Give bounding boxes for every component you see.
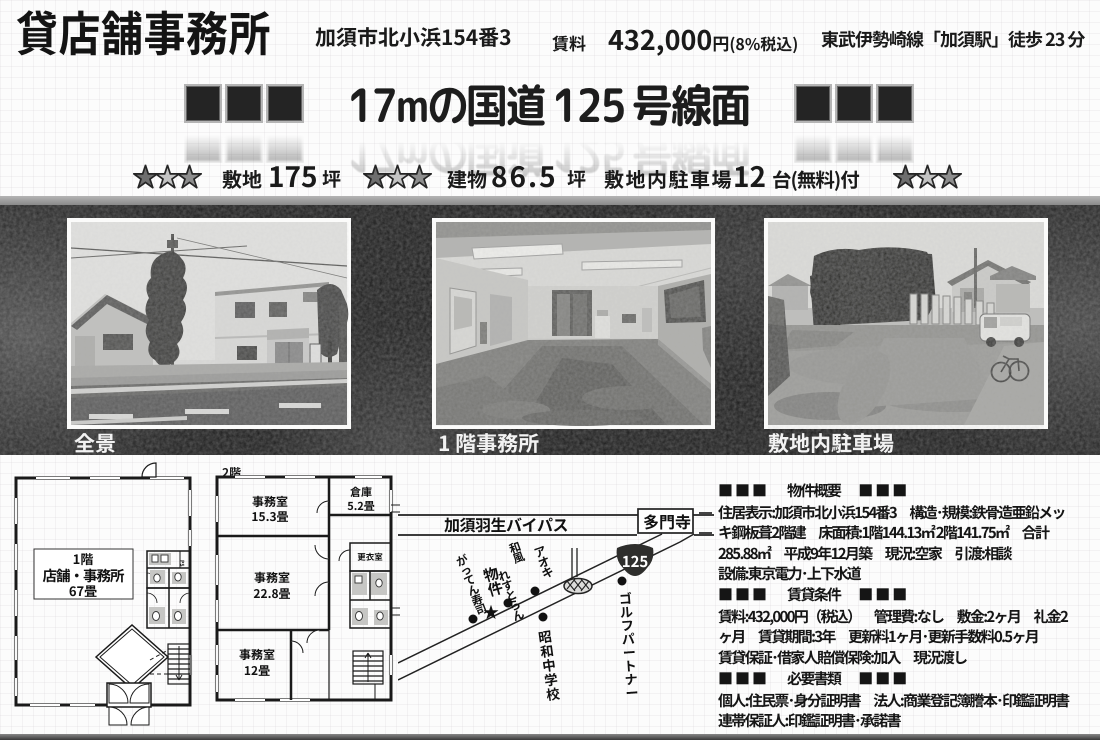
- svg-text:事務室: 事務室: [254, 569, 290, 586]
- svg-text:5.2畳: 5.2畳: [347, 498, 375, 514]
- svg-text:アオキ: アオキ: [530, 543, 557, 580]
- svg-text:多門寺: 多門寺: [643, 509, 691, 533]
- svg-text:和風: 和風: [505, 539, 528, 566]
- svg-text:22.8畳: 22.8畳: [253, 585, 290, 602]
- svg-text:PS: PS: [179, 560, 186, 566]
- svg-text:12畳: 12畳: [244, 662, 270, 679]
- svg-text:加須羽生バイパス: 加須羽生バイパス: [444, 512, 568, 536]
- svg-text:15.3畳: 15.3畳: [251, 508, 288, 525]
- svg-text:昭和中学校: 昭和中学校: [534, 629, 564, 704]
- svg-text:125: 125: [622, 551, 649, 572]
- svg-text:ゴルフパートナー: ゴルフパートナー: [615, 591, 642, 701]
- svg-text:更衣室: 更衣室: [357, 551, 383, 563]
- svg-text:67畳: 67畳: [69, 581, 97, 600]
- svg-text:事務室: 事務室: [239, 646, 275, 663]
